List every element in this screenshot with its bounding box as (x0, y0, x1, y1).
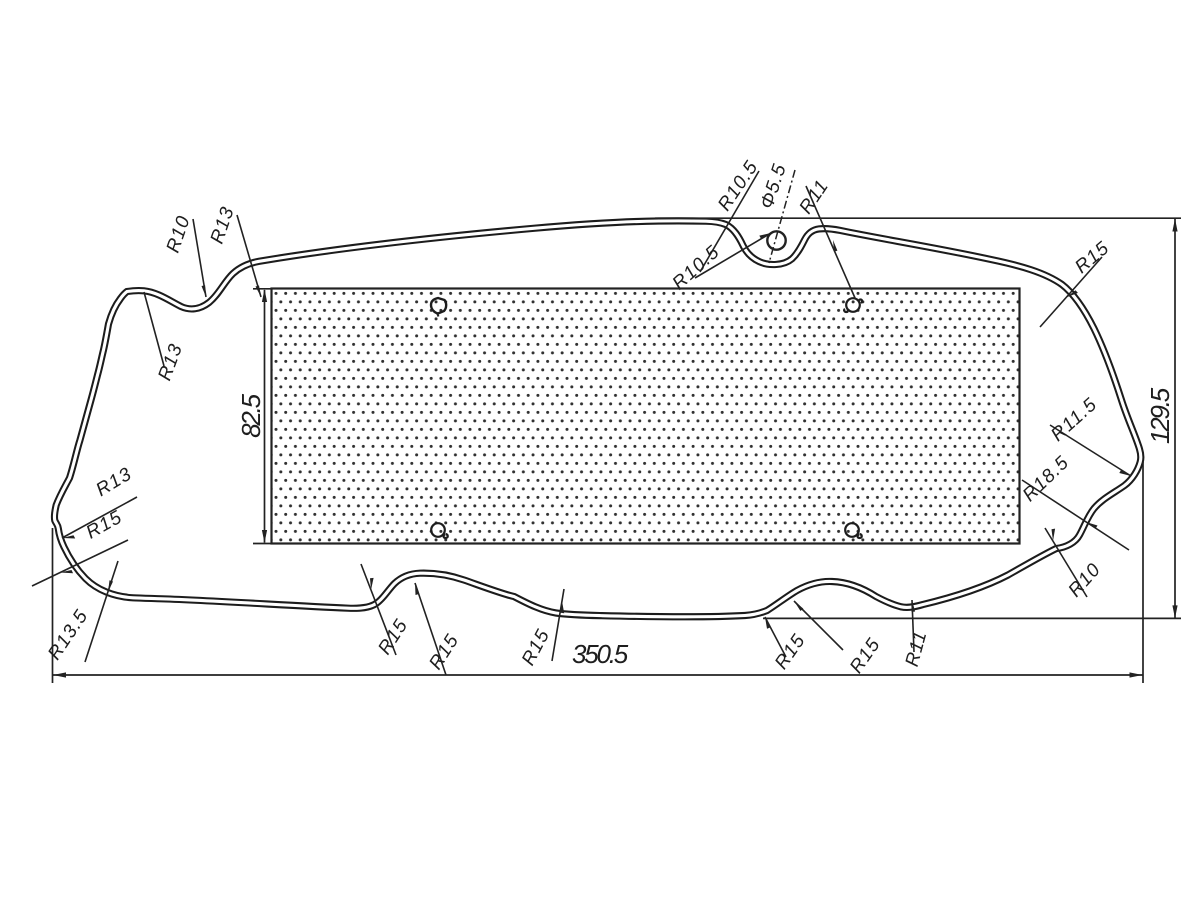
svg-text:129.5: 129.5 (1145, 387, 1175, 444)
svg-text:82.5: 82.5 (236, 393, 266, 438)
svg-text:350.5: 350.5 (572, 639, 629, 669)
